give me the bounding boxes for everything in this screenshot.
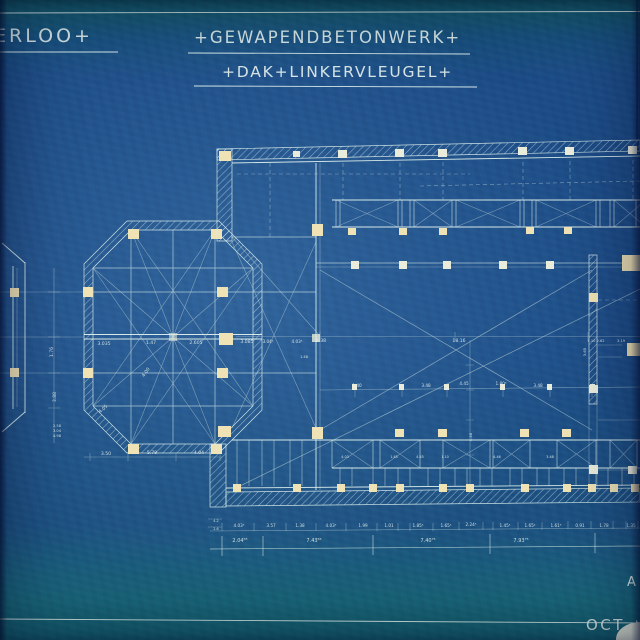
dimension-label: 1.47 (146, 340, 156, 346)
wing-wall-left (217, 149, 232, 241)
dimension-label: 4.03⁵ (325, 523, 336, 528)
title-subject: +GEWAPENDBETONWERK+ (194, 28, 461, 47)
partial-octagon-plan (0, 243, 25, 432)
dimension-label: 7.93⁷⁵ (513, 538, 528, 544)
signature-fragment: A (627, 575, 636, 590)
dimension-label: 1.99 (358, 523, 368, 528)
dimension-label: 1.65⁵ (440, 523, 451, 528)
dimension-labels: 3.0351.472.6053.0854.004.053.505.784.041… (49, 338, 636, 544)
wing-wall-internal-right (589, 255, 597, 404)
dimension-label: 3.88 (52, 392, 58, 402)
dimension-label: 2.24⁵ (465, 522, 476, 527)
dimension-label: 3.65 (582, 347, 587, 356)
dimension-label: 3.085 (240, 339, 253, 345)
dimension-label: 2.04⁵⁵ (232, 538, 247, 544)
dimension-label: 4.45 (416, 455, 424, 459)
dimension-label: 2.605 (189, 340, 202, 346)
dimension-label: 5.78 (147, 450, 157, 456)
dimension-label: 1.61⁵ (550, 523, 561, 528)
dimension-label: 1.01 (384, 523, 394, 528)
dimension-label: 1.45⁵ (499, 523, 510, 528)
dimension-label: 4.45 (459, 381, 469, 386)
dimension-label: 1.78 (599, 523, 609, 528)
dimension-label: 1.40 (352, 383, 362, 388)
dimension-label: 3.035 (97, 341, 110, 347)
dimension-label: 3.50 (101, 451, 111, 457)
wing-plan (210, 140, 640, 507)
dimension-label: 1.76 (49, 347, 55, 357)
dimension-label: 1.48 (300, 355, 309, 359)
dimension-label: 18.16 (452, 338, 465, 344)
dimension-label: 1.10 2.62 (587, 339, 604, 343)
top-truss-band (332, 200, 640, 227)
wing-wall-bottom (226, 488, 640, 506)
dimension-label: 4.03⁵ (291, 339, 302, 344)
bottom-truss-band (232, 440, 640, 486)
dimension-label: 3.48 (421, 383, 431, 388)
dimension-label: 1.85⁵ (412, 523, 423, 528)
dimension-label: 3.48 (546, 455, 554, 459)
title-sheet: +DAK+LINKERVLEUGEL+ (222, 63, 453, 81)
dimension-label: 3.57 (266, 523, 276, 528)
dimension-label: 7.43⁵⁵ (306, 538, 321, 544)
dimension-label: 1.45 (390, 455, 398, 459)
dimension-label: 4.00 (141, 366, 152, 378)
dimension-label: 3.19 (617, 339, 626, 343)
dimension-label: 1.38 (295, 523, 305, 528)
dimension-label: 1.10 (441, 455, 449, 459)
dimension-label: 1.35 (626, 523, 636, 528)
dimension-label: 3.04⁵ (262, 339, 273, 344)
dimension-label: 2.58 (53, 424, 62, 428)
dimension-label: 4.48 (468, 432, 473, 441)
dimension-label: 4.05 (98, 404, 110, 415)
dimension-label: 7.40⁷⁵ (420, 538, 435, 544)
dimension-label: 4.04 (194, 450, 204, 456)
blueprint-drawing: ERLOO+ +GEWAPENDBETONWERK+ +DAK+LINKERVL… (0, 0, 640, 640)
title-location: ERLOO+ (0, 25, 93, 47)
dimension-label: 4.2 (213, 519, 218, 523)
dimension-label: 0.91 (575, 523, 585, 528)
dimension-label: 4.46 (493, 455, 501, 459)
dimension-label: 1.80⁵ (495, 381, 506, 386)
dimension-label: 2.6 (213, 527, 218, 531)
dimension-label: 4.98 (53, 434, 62, 438)
dimension-label: 3.48 (533, 383, 543, 388)
wing-wall-left-lower (210, 444, 226, 507)
dimension-label: 4.03 (341, 455, 349, 459)
dimension-label: 3.04 (53, 429, 62, 433)
footer-block: OCT.+ A (586, 575, 640, 640)
blueprint-canvas: ERLOO+ +GEWAPENDBETONWERK+ +DAK+LINKERVL… (0, 0, 640, 640)
dimension-label: 4.03⁵ (233, 523, 244, 528)
title-block: ERLOO+ +GEWAPENDBETONWERK+ +DAK+LINKERVL… (0, 25, 477, 87)
dimension-label: 8.38 (316, 338, 326, 344)
dimension-label: 1.65² (524, 523, 535, 528)
